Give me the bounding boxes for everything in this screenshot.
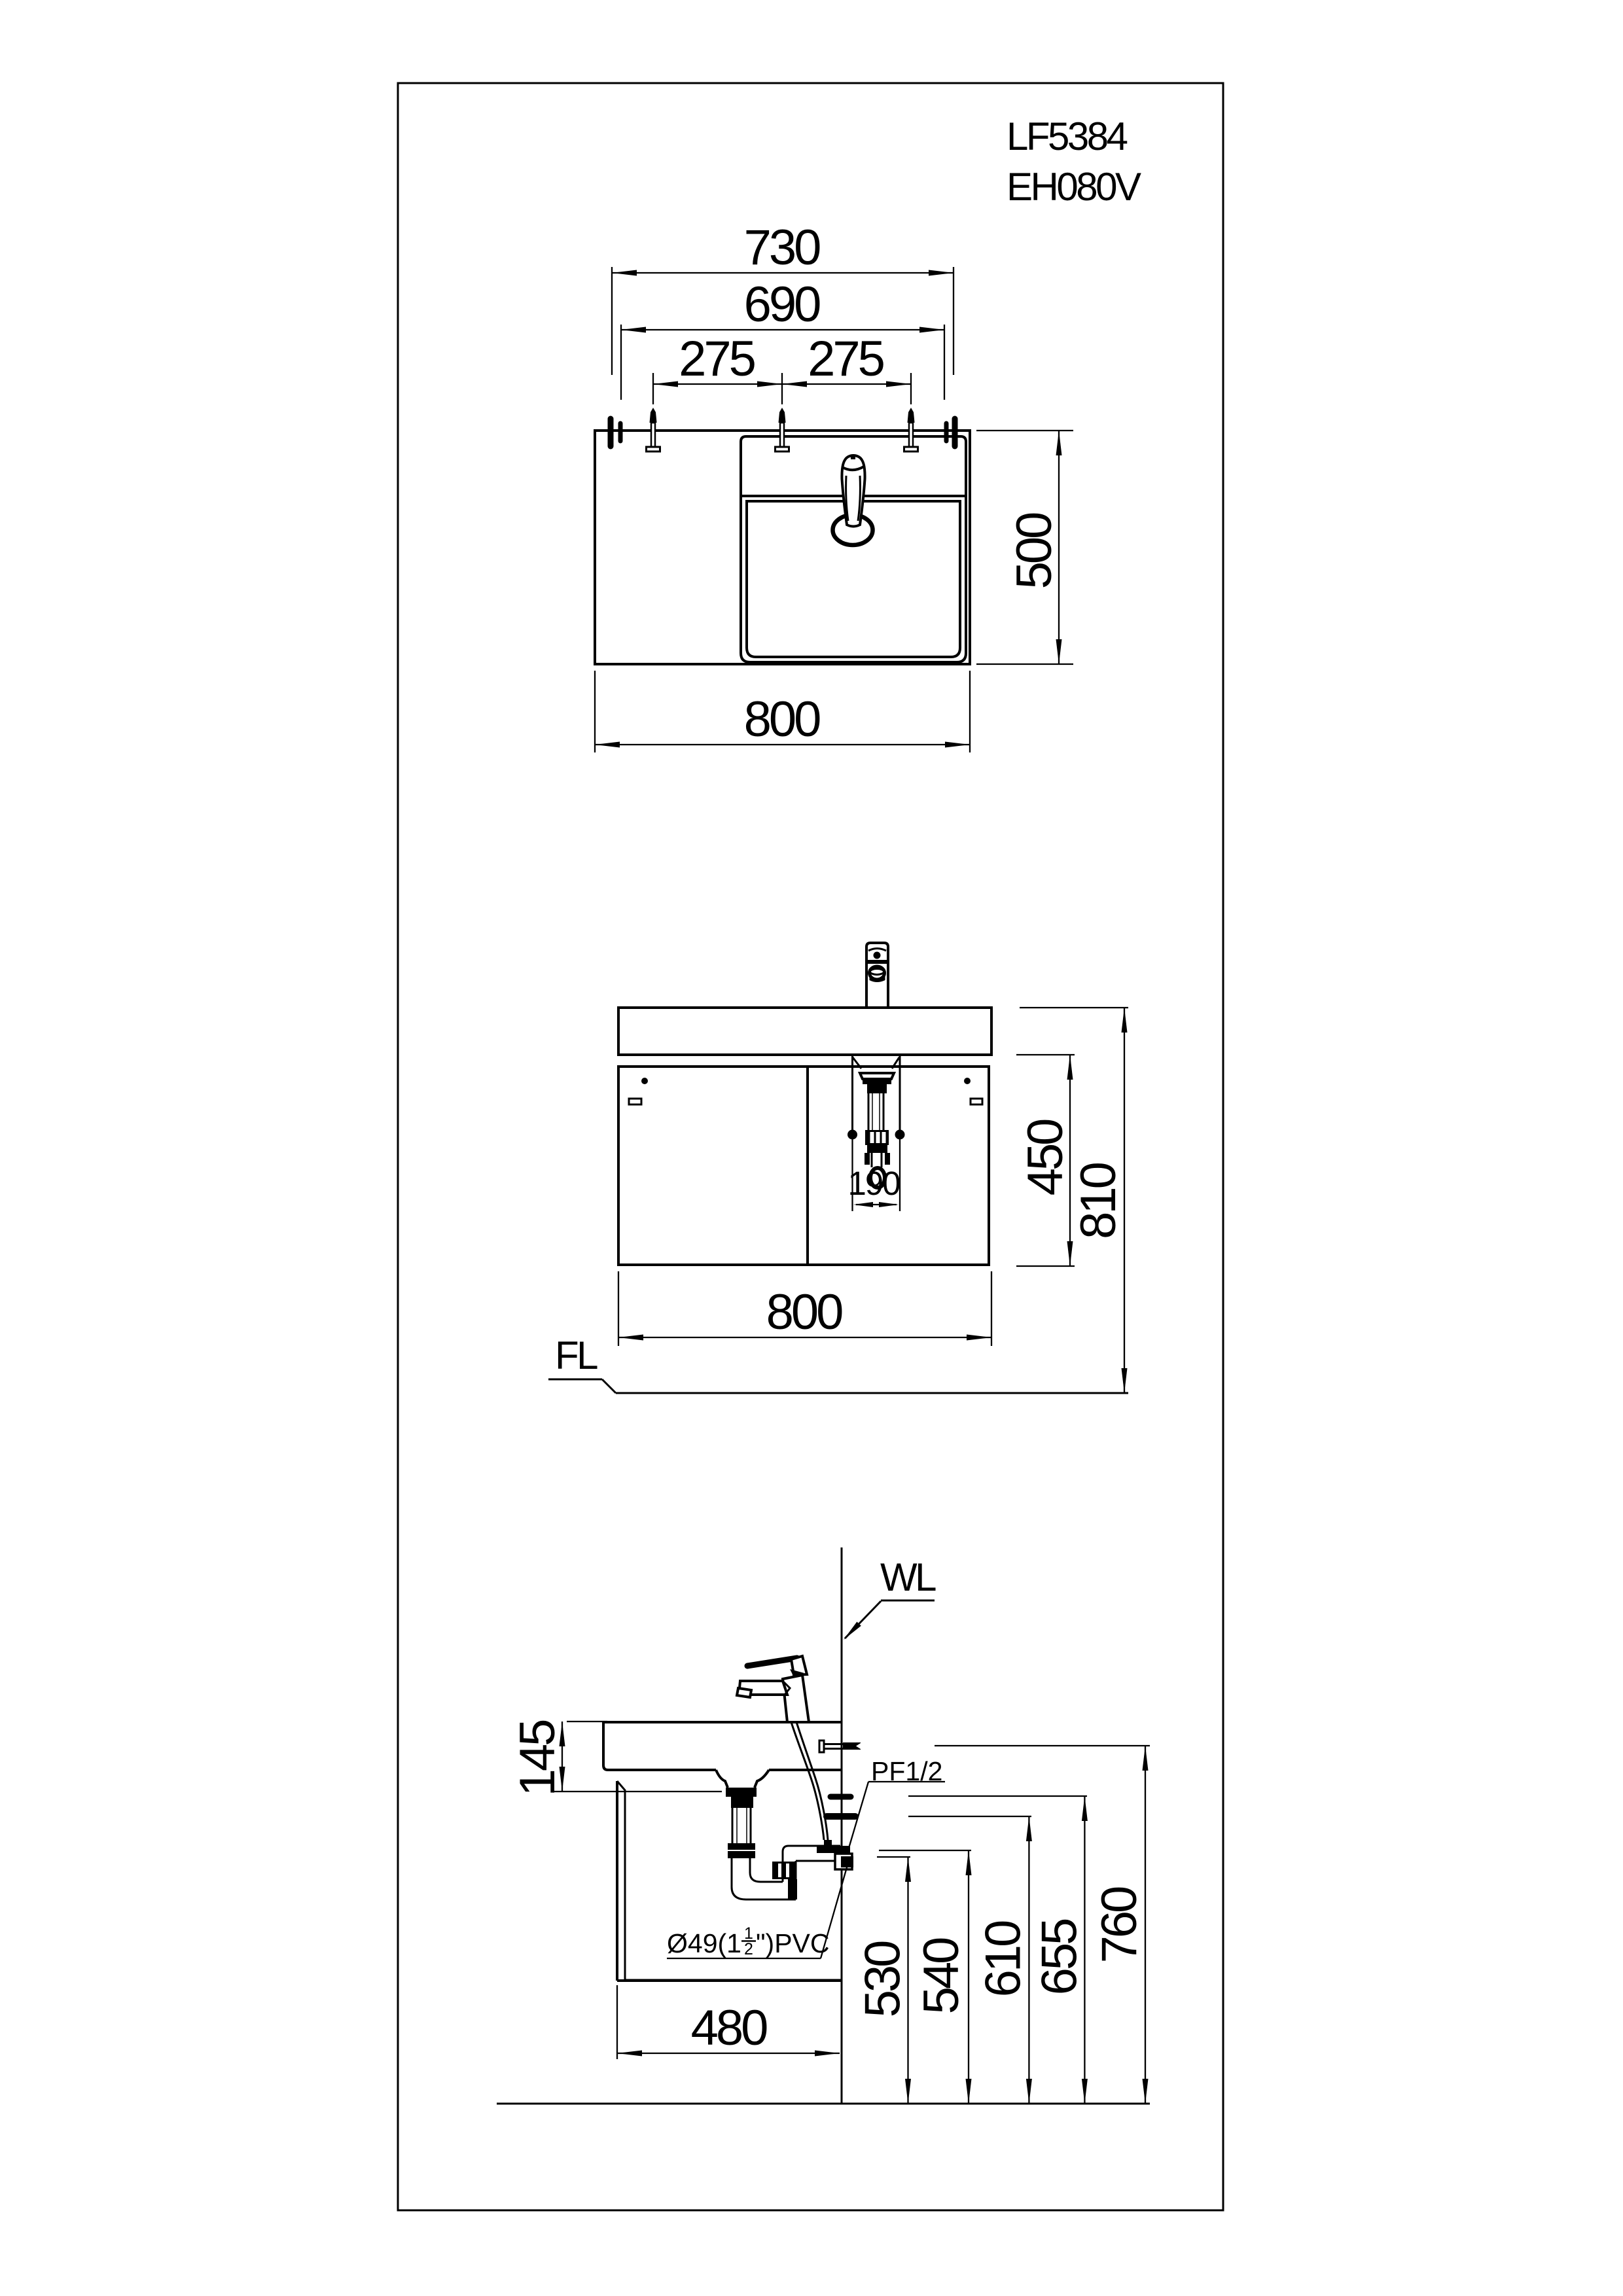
svg-text:690: 690	[744, 277, 821, 332]
svg-text:145: 145	[510, 1720, 565, 1797]
svg-text:2: 2	[744, 1940, 753, 1958]
svg-text:")PVC: ")PVC	[756, 1928, 830, 1958]
svg-text:760: 760	[1092, 1887, 1147, 1964]
svg-text:Ø49(1: Ø49(1	[667, 1928, 741, 1958]
svg-text:730: 730	[744, 220, 821, 275]
svg-text:500: 500	[1007, 513, 1062, 590]
svg-text:530: 530	[855, 1941, 911, 2018]
svg-text:275: 275	[808, 331, 884, 387]
svg-text:480: 480	[691, 2000, 768, 2056]
svg-text:FL: FL	[555, 1333, 597, 1377]
svg-text:655: 655	[1031, 1919, 1087, 1996]
svg-text:610: 610	[976, 1921, 1031, 1998]
svg-text:190: 190	[847, 1165, 900, 1202]
svg-text:275: 275	[679, 331, 755, 387]
svg-text:810: 810	[1071, 1163, 1126, 1239]
svg-text:800: 800	[766, 1284, 843, 1340]
svg-text:540: 540	[914, 1938, 969, 2015]
svg-text:LF5384: LF5384	[1007, 115, 1128, 158]
svg-text:450: 450	[1018, 1120, 1073, 1196]
svg-text:800: 800	[744, 692, 821, 747]
svg-text:WL: WL	[880, 1555, 936, 1599]
svg-text:EH080V: EH080V	[1007, 165, 1141, 209]
